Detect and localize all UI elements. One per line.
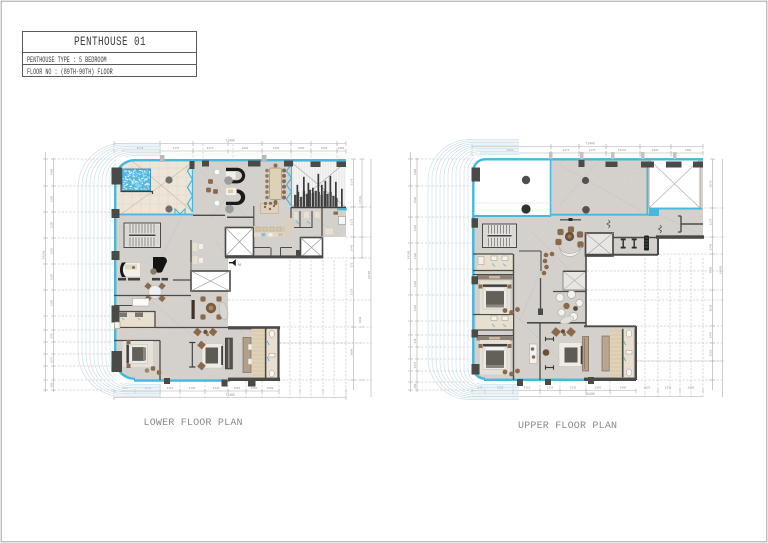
- svg-text:24345: 24345: [408, 250, 411, 259]
- svg-text:1530: 1530: [321, 147, 328, 150]
- svg-text:11270: 11270: [618, 149, 627, 152]
- svg-text:3175: 3175: [207, 147, 214, 150]
- svg-text:11540: 11540: [359, 195, 362, 204]
- svg-text:1575: 1575: [51, 356, 54, 363]
- svg-text:24345: 24345: [43, 250, 46, 259]
- svg-text:1965: 1965: [234, 387, 241, 390]
- svg-text:5600: 5600: [350, 348, 353, 355]
- svg-text:71400: 71400: [225, 139, 235, 143]
- svg-text:2330: 2330: [665, 387, 672, 390]
- svg-text:940: 940: [414, 338, 417, 343]
- svg-text:2120: 2120: [51, 247, 54, 254]
- svg-text:71400: 71400: [225, 393, 235, 397]
- svg-text:2120: 2120: [414, 304, 417, 311]
- svg-text:1500: 1500: [298, 147, 305, 150]
- svg-text:5170: 5170: [350, 178, 353, 185]
- svg-text:5670: 5670: [709, 180, 712, 187]
- svg-text:2120: 2120: [51, 221, 54, 228]
- svg-text:24345: 24345: [720, 265, 723, 274]
- svg-text:2120: 2120: [51, 195, 54, 202]
- svg-text:1965: 1965: [595, 387, 602, 390]
- svg-text:1440: 1440: [709, 243, 712, 250]
- svg-text:4900: 4900: [414, 168, 417, 175]
- svg-text:2330: 2330: [273, 147, 280, 150]
- svg-text:1575: 1575: [414, 361, 417, 368]
- svg-text:940: 940: [51, 333, 54, 338]
- svg-text:2925: 2925: [644, 387, 651, 390]
- svg-text:4080: 4080: [709, 266, 712, 273]
- svg-text:1175: 1175: [563, 149, 570, 152]
- svg-text:2415: 2415: [167, 387, 174, 390]
- svg-text:3175: 3175: [350, 218, 353, 225]
- svg-text:1440: 1440: [350, 244, 353, 251]
- svg-text:375: 375: [350, 262, 353, 267]
- svg-text:1360: 1360: [338, 147, 345, 150]
- svg-text:2120: 2120: [414, 252, 417, 259]
- svg-text:2120: 2120: [414, 224, 417, 231]
- svg-text:2630: 2630: [359, 316, 362, 323]
- svg-text:2120: 2120: [414, 196, 417, 203]
- svg-text:2120: 2120: [189, 387, 196, 390]
- svg-text:1660: 1660: [267, 387, 274, 390]
- svg-text:7400: 7400: [685, 149, 692, 152]
- svg-text:3175: 3175: [709, 218, 712, 225]
- svg-text:16400: 16400: [585, 392, 595, 396]
- svg-text:3130: 3130: [570, 387, 577, 390]
- svg-text:4900: 4900: [51, 168, 54, 175]
- svg-text:3175: 3175: [589, 149, 596, 152]
- svg-text:2120: 2120: [51, 273, 54, 280]
- svg-text:24345: 24345: [368, 270, 371, 279]
- svg-text:2120: 2120: [414, 280, 417, 287]
- svg-text:3170: 3170: [350, 288, 353, 295]
- svg-text:2415: 2415: [524, 387, 531, 390]
- svg-text:01: 01: [238, 263, 242, 266]
- svg-text:2120: 2120: [51, 299, 54, 306]
- svg-text:4400: 4400: [620, 387, 627, 390]
- svg-text:3000: 3000: [242, 147, 249, 150]
- svg-text:5525: 5525: [709, 349, 712, 356]
- svg-text:680: 680: [51, 382, 54, 387]
- svg-text:680: 680: [414, 383, 417, 388]
- svg-text:2120: 2120: [547, 387, 554, 390]
- svg-text:3630: 3630: [709, 304, 712, 311]
- svg-text:1175: 1175: [173, 147, 180, 150]
- svg-text:2470: 2470: [709, 331, 712, 338]
- svg-text:1550: 1550: [251, 387, 258, 390]
- svg-text:71400: 71400: [585, 142, 595, 146]
- svg-text:2330: 2330: [652, 149, 659, 152]
- svg-text:3130: 3130: [213, 387, 220, 390]
